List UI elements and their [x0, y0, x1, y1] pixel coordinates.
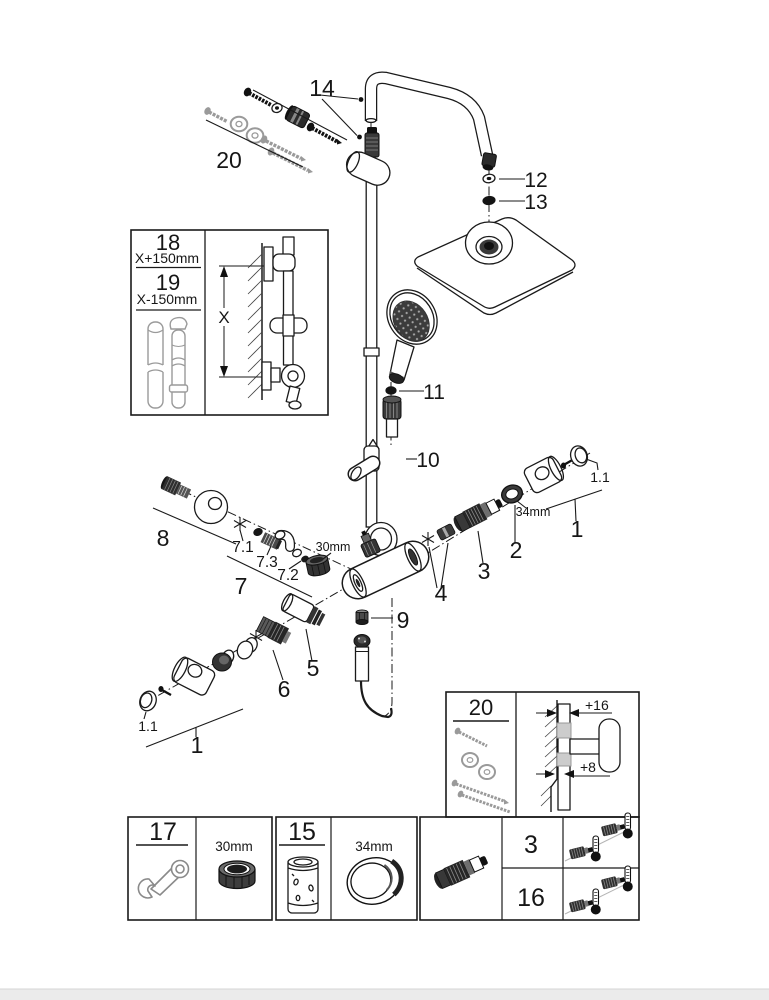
knob-ring — [213, 649, 236, 671]
callout-34mm: 34mm — [516, 505, 551, 519]
rail-joint — [364, 348, 379, 356]
seal-13 — [482, 195, 496, 206]
callout-1-right: 1 — [571, 516, 584, 542]
callout-8: 8 — [157, 525, 170, 551]
ring-1-1-right — [568, 444, 590, 469]
callout-3: 3 — [478, 558, 491, 584]
mount-depth-drawing — [536, 700, 620, 812]
wall-section — [248, 237, 307, 409]
callout-7-1: 7.1 — [232, 539, 254, 556]
callout-1-left: 1 — [191, 732, 204, 758]
callout-1-1-left: 1.1 — [138, 718, 158, 734]
check-valve-3 — [451, 494, 505, 533]
table-17-label: 17 — [149, 818, 177, 846]
exploded-parts-diagram-page: 14 20 12 13 11 10 8 7.1 7.3 7.2 7 30mm 4… — [0, 0, 769, 1000]
dimension-x-label: X — [218, 308, 229, 327]
callout-4: 4 — [435, 580, 448, 606]
inset-19-dim: X-150mm — [137, 291, 198, 307]
rail-top-fitting — [365, 127, 379, 157]
callout-12: 12 — [524, 169, 547, 192]
table-34mm-label: 34mm — [355, 839, 393, 854]
callout-30mm: 30mm — [316, 540, 351, 554]
callout-11: 11 — [423, 381, 445, 404]
offset-plus8-label: +8 — [580, 759, 596, 775]
nut-30mm — [305, 553, 331, 577]
check-valve-part-icon — [432, 851, 491, 891]
hand-shower — [377, 280, 447, 437]
escutcheon-1-right — [523, 454, 567, 494]
shower-system-exploded-diagram: 14 20 12 13 11 10 8 7.1 7.3 7.2 7 30mm 4… — [0, 0, 769, 1000]
callout-20-top: 20 — [216, 147, 242, 173]
inset-mount-labels: 20 +16 +8 — [469, 695, 609, 775]
inset-20-number: 20 — [469, 695, 493, 720]
ring-34mm-icon — [342, 852, 406, 910]
table-15-label: 15 — [288, 818, 316, 846]
sleeve-tool-icon — [288, 857, 318, 913]
table-3-label: 3 — [524, 831, 538, 859]
fixing-set-20-icon — [451, 727, 510, 812]
adapter-4 — [422, 523, 456, 546]
head-shower — [415, 218, 575, 315]
wrench-icon — [138, 861, 188, 898]
center-lines — [140, 120, 590, 716]
callout-14: 14 — [309, 75, 335, 101]
tools-table — [128, 813, 639, 920]
row-16-icons — [565, 866, 633, 915]
shower-hose — [354, 635, 392, 718]
page-bottom-edge — [0, 989, 769, 1000]
callout-5: 5 — [307, 655, 320, 681]
hand-shower-connector — [383, 396, 401, 437]
table-30mm-label: 30mm — [215, 839, 253, 854]
wall-union-8 — [159, 475, 227, 523]
washer-11 — [385, 386, 396, 394]
callout-7: 7 — [235, 573, 248, 599]
callout-2: 2 — [510, 537, 523, 563]
arm-end-fitting — [481, 152, 497, 171]
callout-7-3: 7.3 — [256, 554, 278, 571]
callout-1-1-right: 1.1 — [590, 469, 610, 485]
nut-30mm-icon — [219, 861, 255, 889]
hose-nut-9 — [356, 610, 368, 625]
thermostat-valve — [347, 523, 425, 600]
stepped-ring — [235, 636, 259, 661]
callout-9: 9 — [397, 607, 410, 633]
rail-pipe-18-icon — [146, 322, 165, 408]
inset-18-dim: X+150mm — [135, 250, 199, 266]
table-16-label: 16 — [517, 884, 545, 912]
callout-10: 10 — [416, 449, 439, 472]
callout-13: 13 — [524, 191, 547, 214]
shower-arm — [366, 78, 497, 206]
ring-1-1-left — [137, 689, 159, 713]
cartridge-sleeve-5 — [279, 592, 326, 629]
escutcheon-1-left — [169, 655, 216, 697]
screw-left — [158, 686, 171, 695]
rail-pipe-19-icon — [170, 318, 188, 408]
offset-plus16-label: +16 — [585, 697, 609, 713]
callout-7-2: 7.2 — [277, 567, 299, 584]
screw-right — [561, 461, 572, 469]
row-3-icons — [565, 813, 633, 862]
callout-6: 6 — [278, 676, 291, 702]
ring-2 — [499, 482, 524, 505]
